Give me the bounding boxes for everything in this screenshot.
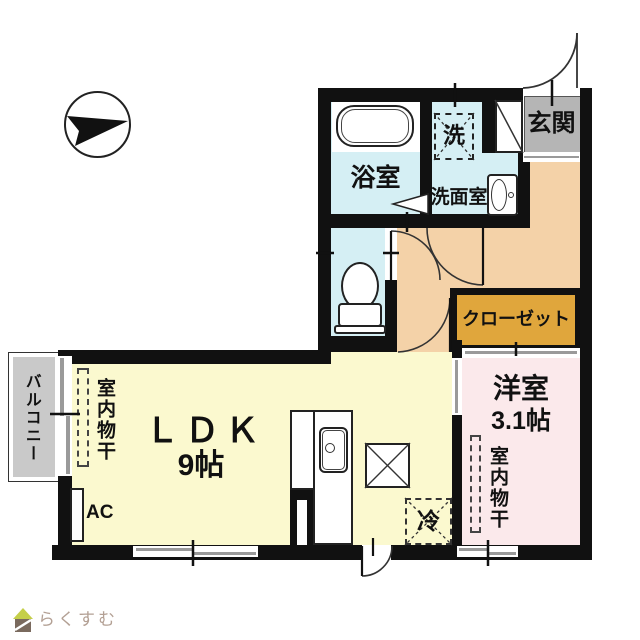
floor-hatch — [365, 443, 410, 488]
ldk-window-pane — [136, 548, 194, 551]
western-window-pane — [459, 548, 489, 551]
closet-label: クローゼット — [457, 310, 575, 329]
backdoor-opening — [362, 545, 391, 560]
bathroom-label: 浴室 — [331, 165, 420, 191]
wall-shoebox-left — [482, 88, 495, 153]
wall-right — [580, 88, 592, 560]
logo-house-body-icon — [15, 619, 31, 632]
wall-bath-washroom — [420, 102, 432, 227]
western-room-label: 洋室 — [462, 374, 580, 403]
hallway-floor — [397, 228, 580, 290]
drying-pole-western — [470, 435, 481, 533]
balcony-label: バルコニー — [22, 362, 39, 474]
closet-sliding-door-line — [465, 351, 577, 354]
bathtub-inner — [341, 109, 409, 143]
kitchen-panel-slot — [297, 500, 307, 545]
wall-ldk-western-top — [452, 340, 462, 358]
washer-label: 洗 — [434, 124, 474, 147]
ldk-drying-label: 室内物干 — [94, 372, 114, 468]
ac-label: AC — [86, 503, 118, 523]
balcony-window-pane — [66, 416, 70, 474]
ldk-window-pane — [194, 552, 256, 555]
western-room-size: 3.1帖 — [462, 408, 580, 434]
drying-pole-ldk — [77, 368, 89, 467]
western-drying-label: 室内物干 — [487, 438, 507, 538]
toilet-base — [334, 325, 386, 334]
logo-house-stripe — [15, 620, 31, 630]
western-window-pane — [488, 552, 516, 555]
wall-washroom-hall — [518, 152, 530, 228]
ac-unit — [70, 488, 84, 542]
hallway-floor — [397, 336, 450, 352]
balcony-window-pane — [60, 358, 64, 416]
logo-text: らくすむ — [38, 611, 118, 629]
ldk-western-sliding-door-line — [455, 360, 458, 413]
wall-ldk-top — [58, 350, 331, 364]
toilet-tank — [338, 303, 382, 327]
kitchen-faucet — [325, 443, 335, 453]
floorplan-canvas: 玄関 浴室 洗 洗面室 クローゼット 洋室 3.1帖 室内物干 ＬＤＫ 9帖 室… — [0, 0, 640, 640]
entrance-door-arc — [523, 33, 577, 88]
logo-house-roof-icon — [13, 608, 33, 619]
ldk-size: 9帖 — [105, 450, 297, 482]
ldk-label: ＬＤＫ — [105, 414, 305, 450]
shoe-cabinet — [495, 100, 523, 153]
entrance-label: 玄関 — [523, 111, 580, 136]
washbasin-drain — [508, 192, 514, 198]
fridge-label: 冷 — [405, 509, 452, 533]
wall-ldk-western-bottom — [452, 415, 462, 545]
entrance-step-line — [524, 156, 579, 158]
compass-circle — [64, 91, 131, 158]
wall-bath-toilet — [318, 214, 518, 228]
washroom-label: 洗面室 — [420, 188, 498, 208]
